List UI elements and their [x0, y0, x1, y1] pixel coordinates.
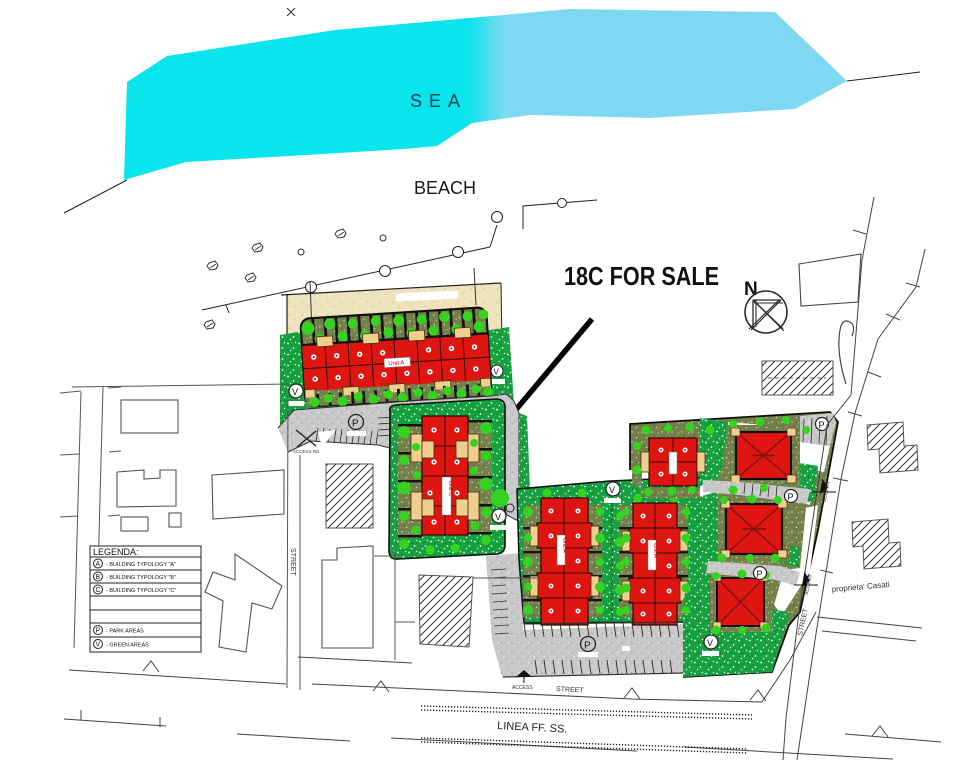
svg-text:- BUILDING TYPOLOGY "A": - BUILDING TYPOLOGY "A": [106, 562, 176, 568]
svg-text:P: P: [96, 628, 101, 635]
svg-text:BEACH: BEACH: [414, 178, 476, 198]
svg-text:P: P: [584, 641, 591, 652]
svg-text:- BUILDING TYPOLOGY "B": - BUILDING TYPOLOGY "B": [106, 575, 176, 581]
svg-text:- BUILDING TYPOLOGY "C": - BUILDING TYPOLOGY "C": [106, 588, 176, 594]
svg-text:LEGENDA:: LEGENDA:: [93, 547, 139, 557]
svg-text:STREET: STREET: [289, 548, 296, 576]
svg-text:STREET: STREET: [556, 686, 585, 694]
svg-text:A: A: [96, 561, 101, 568]
svg-text:SEA: SEA: [410, 91, 467, 111]
svg-text:V: V: [707, 638, 713, 648]
svg-text:C: C: [96, 587, 101, 594]
svg-text:V: V: [292, 387, 298, 397]
svg-text:18C FOR SALE: 18C FOR SALE: [564, 261, 719, 291]
svg-text:P: P: [788, 492, 794, 502]
svg-text:ACCESS: ACCESS: [512, 685, 533, 691]
svg-text:Unit C: Unit C: [447, 481, 453, 496]
svg-text:- GREEN AREAS: - GREEN AREAS: [106, 643, 149, 649]
svg-text:V: V: [495, 512, 501, 522]
svg-text:Unit A: Unit A: [561, 538, 567, 553]
svg-text:V: V: [96, 642, 101, 649]
svg-text:Unit A: Unit A: [388, 360, 404, 367]
svg-text:Unit A: Unit A: [652, 543, 658, 558]
svg-text:P: P: [757, 569, 763, 579]
svg-text:ACCESS RD: ACCESS RD: [293, 449, 320, 454]
svg-text:V: V: [494, 368, 500, 377]
svg-text:P: P: [819, 420, 825, 430]
svg-text:B: B: [96, 574, 101, 581]
svg-text:V: V: [609, 485, 615, 495]
svg-text:P: P: [352, 419, 359, 430]
svg-text:- PARK AREAS: - PARK AREAS: [106, 629, 144, 635]
